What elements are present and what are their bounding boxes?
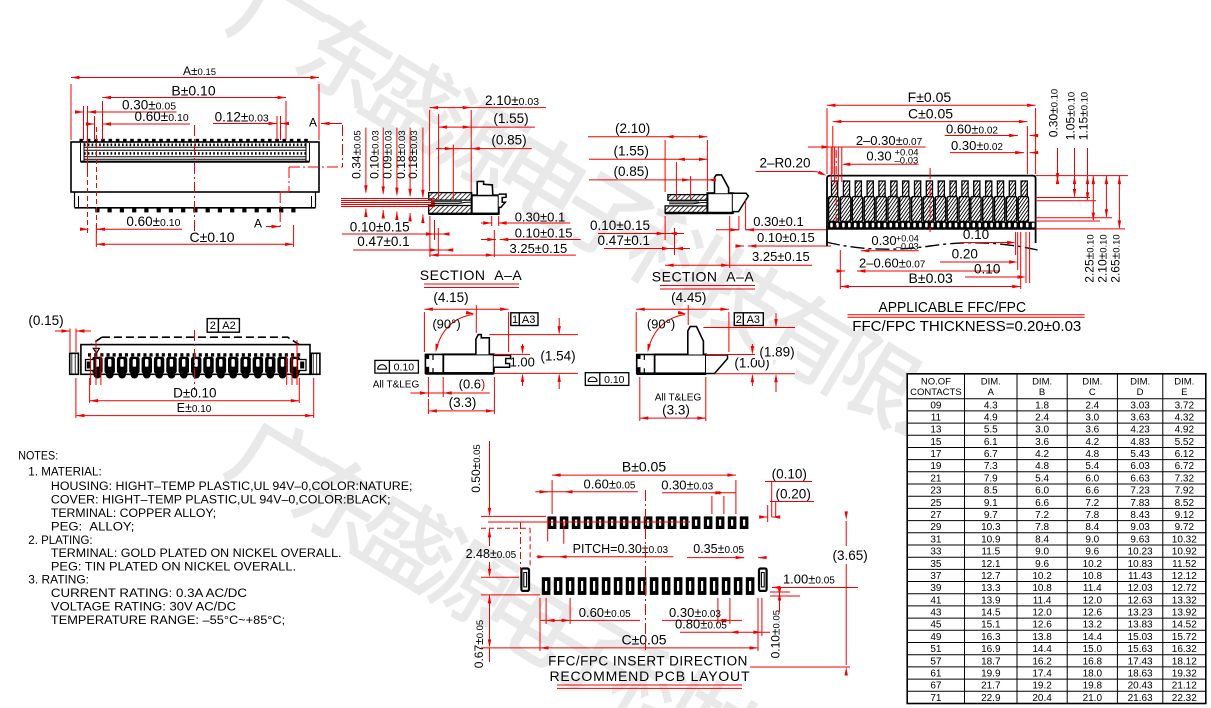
svg-text:0.12±0.03: 0.12±0.03 <box>215 109 269 124</box>
svg-text:5.4: 5.4 <box>1035 473 1049 484</box>
svg-text:0.10: 0.10 <box>394 362 415 374</box>
svg-text:6.12: 6.12 <box>1175 449 1195 460</box>
svg-text:41: 41 <box>930 595 942 606</box>
svg-text:10.92: 10.92 <box>1172 547 1197 558</box>
svg-text:C±0.05: C±0.05 <box>621 631 666 647</box>
svg-text:6.6: 6.6 <box>1035 498 1049 509</box>
svg-text:2.4: 2.4 <box>1035 413 1049 424</box>
svg-text:DIM.: DIM. <box>1130 377 1150 388</box>
svg-text:5.52: 5.52 <box>1175 437 1195 448</box>
svg-text:A: A <box>988 387 995 398</box>
svg-text:19.32: 19.32 <box>1172 669 1197 680</box>
svg-text:6.7: 6.7 <box>984 449 998 460</box>
svg-text:51: 51 <box>930 644 942 655</box>
svg-text:C±0.10: C±0.10 <box>189 229 234 245</box>
svg-text:1.8: 1.8 <box>1035 400 1049 411</box>
svg-text:10.32: 10.32 <box>1172 534 1197 545</box>
svg-text:19: 19 <box>930 461 942 472</box>
svg-text:8.4: 8.4 <box>1085 522 1099 533</box>
svg-text:4.9: 4.9 <box>984 413 998 424</box>
svg-text:9.6: 9.6 <box>1085 547 1099 558</box>
svg-text:2.10±0.10: 2.10±0.10 <box>1095 234 1109 282</box>
svg-text:0.10: 0.10 <box>974 262 1000 277</box>
svg-text:27: 27 <box>930 510 942 521</box>
svg-text:6.63: 6.63 <box>1130 473 1150 484</box>
svg-text:12.12: 12.12 <box>1172 571 1197 582</box>
svg-text:18.7: 18.7 <box>981 656 1001 667</box>
svg-text:DIM.: DIM. <box>1174 377 1194 388</box>
svg-text:(90°): (90°) <box>647 317 675 332</box>
svg-text:6.03: 6.03 <box>1130 461 1150 472</box>
svg-text:13.83: 13.83 <box>1128 620 1153 631</box>
svg-text:HOUSING: HIGHT–TEMP PLASTIC,UL: HOUSING: HIGHT–TEMP PLASTIC,UL 94V–0,COL… <box>51 479 413 493</box>
svg-text:0.10: 0.10 <box>963 227 989 242</box>
svg-text:D: D <box>1137 387 1144 398</box>
svg-text:21.63: 21.63 <box>1128 693 1153 704</box>
svg-text:RECOMMEND PCB LAYOUT: RECOMMEND PCB LAYOUT <box>549 668 750 684</box>
svg-text:2.25±0.10: 2.25±0.10 <box>1082 234 1096 282</box>
svg-text:DIM.: DIM. <box>1082 377 1102 388</box>
svg-text:C±0.05: C±0.05 <box>908 105 953 121</box>
svg-text:8.43: 8.43 <box>1130 510 1150 521</box>
svg-text:(0.15): (0.15) <box>28 313 63 328</box>
svg-text:A2: A2 <box>222 320 235 332</box>
svg-text:VOLTAGE RATING: 30V AC/DC: VOLTAGE RATING: 30V AC/DC <box>51 599 236 613</box>
svg-text:2: 2 <box>210 320 216 332</box>
svg-text:B±0.03: B±0.03 <box>909 270 953 286</box>
svg-text:2. PLATING:: 2. PLATING: <box>28 533 92 547</box>
svg-text:(1.55): (1.55) <box>493 111 528 126</box>
svg-text:A: A <box>254 217 262 231</box>
svg-text:7.83: 7.83 <box>1130 498 1150 509</box>
svg-text:2–R0.20: 2–R0.20 <box>759 156 810 171</box>
svg-text:31: 31 <box>930 534 942 545</box>
svg-text:CURRENT RATING: 0.3A AC/DC: CURRENT RATING: 0.3A AC/DC <box>51 586 247 600</box>
svg-text:0.30±0.1: 0.30±0.1 <box>753 214 804 229</box>
svg-text:SECTION A–A: SECTION A–A <box>420 267 523 283</box>
svg-text:18.12: 18.12 <box>1172 656 1197 667</box>
svg-text:9.1: 9.1 <box>984 498 998 509</box>
svg-text:10.9: 10.9 <box>981 534 1001 545</box>
svg-text:C: C <box>1089 387 1096 398</box>
svg-text:(0.85): (0.85) <box>614 164 649 179</box>
svg-text:3.63: 3.63 <box>1130 413 1150 424</box>
svg-text:CONTACTS: CONTACTS <box>910 387 962 398</box>
svg-text:(0.85): (0.85) <box>491 133 526 148</box>
svg-text:12.03: 12.03 <box>1128 583 1153 594</box>
svg-text:0.35±0.05: 0.35±0.05 <box>693 542 744 556</box>
svg-text:20.43: 20.43 <box>1128 681 1153 692</box>
svg-text:FFC/FPC THICKNESS=0.20±0.03: FFC/FPC THICKNESS=0.20±0.03 <box>852 318 1081 335</box>
svg-text:7.92: 7.92 <box>1175 486 1195 497</box>
svg-text:3.03: 3.03 <box>1130 400 1150 411</box>
svg-text:DIM.: DIM. <box>1032 377 1052 388</box>
svg-text:21.12: 21.12 <box>1172 681 1197 692</box>
svg-text:B±0.05: B±0.05 <box>622 459 666 475</box>
svg-text:9.6: 9.6 <box>1035 559 1049 570</box>
svg-text:12.63: 12.63 <box>1128 595 1153 606</box>
svg-text:0.10±0.15: 0.10±0.15 <box>590 218 650 233</box>
svg-text:9.12: 9.12 <box>1175 510 1195 521</box>
svg-text:15: 15 <box>930 437 942 448</box>
svg-text:22.9: 22.9 <box>981 693 1001 704</box>
svg-text:35: 35 <box>930 559 942 570</box>
svg-text:3.0: 3.0 <box>1035 425 1049 436</box>
svg-text:4.2: 4.2 <box>1085 437 1099 448</box>
svg-text:F±0.05: F±0.05 <box>908 89 952 105</box>
svg-text:1: 1 <box>512 314 518 326</box>
svg-text:17: 17 <box>930 449 942 460</box>
svg-text:(4.15): (4.15) <box>433 290 468 305</box>
svg-text:1.05±0.10: 1.05±0.10 <box>1064 92 1078 140</box>
svg-text:37: 37 <box>930 571 942 582</box>
svg-text:18.0: 18.0 <box>1083 669 1103 680</box>
svg-text:7.8: 7.8 <box>1085 510 1099 521</box>
svg-text:All T&LEG: All T&LEG <box>373 379 420 390</box>
svg-text:DIM.: DIM. <box>981 377 1001 388</box>
svg-text:18.63: 18.63 <box>1128 669 1153 680</box>
svg-text:16.3: 16.3 <box>981 632 1001 643</box>
svg-text:12.0: 12.0 <box>1032 608 1052 619</box>
svg-text:9.72: 9.72 <box>1175 522 1195 533</box>
svg-text:0.34±0.05: 0.34±0.05 <box>349 130 363 178</box>
svg-text:29: 29 <box>930 522 942 533</box>
svg-text:57: 57 <box>930 656 942 667</box>
svg-text:11.4: 11.4 <box>1083 583 1102 594</box>
svg-text:4.32: 4.32 <box>1175 413 1195 424</box>
svg-text:15.0: 15.0 <box>1083 644 1103 655</box>
svg-text:25: 25 <box>930 498 942 509</box>
svg-text:19.2: 19.2 <box>1032 681 1052 692</box>
svg-text:A3: A3 <box>522 314 535 326</box>
svg-text:2.4: 2.4 <box>1085 400 1099 411</box>
svg-text:20.4: 20.4 <box>1032 693 1052 704</box>
svg-text:10.23: 10.23 <box>1128 547 1153 558</box>
svg-text:09: 09 <box>930 400 942 411</box>
svg-text:9.63: 9.63 <box>1130 534 1150 545</box>
svg-text:–0.03: –0.03 <box>896 242 919 252</box>
svg-text:10.83: 10.83 <box>1128 559 1153 570</box>
svg-text:23: 23 <box>930 486 942 497</box>
svg-text:0.10±0.05: 0.10±0.05 <box>769 610 783 658</box>
svg-text:6.0: 6.0 <box>1035 486 1049 497</box>
svg-text:3. RATING:: 3. RATING: <box>28 573 89 587</box>
svg-text:10.3: 10.3 <box>981 522 1001 533</box>
svg-text:3.72: 3.72 <box>1175 400 1195 411</box>
svg-text:12.7: 12.7 <box>981 571 1001 582</box>
svg-text:9.7: 9.7 <box>984 510 998 521</box>
svg-text:13.3: 13.3 <box>981 583 1001 594</box>
svg-text:71: 71 <box>930 693 942 704</box>
svg-text:10.2: 10.2 <box>1032 571 1052 582</box>
svg-text:E: E <box>1181 387 1187 398</box>
svg-text:3.25±0.15: 3.25±0.15 <box>510 241 568 256</box>
svg-text:0.30±0.1: 0.30±0.1 <box>515 209 566 224</box>
svg-text:0.47±0.1: 0.47±0.1 <box>598 233 650 248</box>
svg-text:4.23: 4.23 <box>1130 425 1150 436</box>
svg-text:0.30: 0.30 <box>871 233 896 248</box>
svg-text:(1.54): (1.54) <box>540 349 575 364</box>
svg-text:4.8: 4.8 <box>1035 461 1049 472</box>
svg-text:2.48±0.05: 2.48±0.05 <box>466 547 517 561</box>
svg-text:12.6: 12.6 <box>1083 608 1103 619</box>
svg-text:21.7: 21.7 <box>981 681 1001 692</box>
svg-text:7.23: 7.23 <box>1130 486 1150 497</box>
svg-text:7.8: 7.8 <box>1035 522 1049 533</box>
svg-text:D±0.10: D±0.10 <box>173 385 216 400</box>
svg-text:11: 11 <box>931 413 942 424</box>
svg-text:0.30±0.10: 0.30±0.10 <box>1047 89 1061 137</box>
svg-text:6.1: 6.1 <box>984 437 998 448</box>
svg-text:APPLICABLE FFC/FPC: APPLICABLE FFC/FPC <box>879 299 1027 316</box>
svg-text:22.32: 22.32 <box>1172 693 1197 704</box>
svg-text:10.2: 10.2 <box>1083 559 1103 570</box>
svg-text:9.03: 9.03 <box>1130 522 1150 533</box>
svg-text:TERMINAL: COPPER ALLOY;: TERMINAL: COPPER ALLOY; <box>51 506 216 520</box>
svg-text:7.2: 7.2 <box>1085 498 1099 509</box>
svg-text:7.32: 7.32 <box>1175 473 1195 484</box>
svg-text:15.1: 15.1 <box>981 620 1001 631</box>
svg-text:11.52: 11.52 <box>1172 559 1197 570</box>
svg-text:12.1: 12.1 <box>981 559 1001 570</box>
svg-text:2.10±0.03: 2.10±0.03 <box>485 93 539 108</box>
svg-text:19.8: 19.8 <box>1083 681 1103 692</box>
svg-text:(3.3): (3.3) <box>662 402 690 417</box>
svg-text:NO.OF: NO.OF <box>921 377 951 388</box>
svg-text:3.6: 3.6 <box>1035 437 1049 448</box>
svg-text:A3: A3 <box>747 314 760 326</box>
svg-text:4.2: 4.2 <box>1035 449 1049 460</box>
svg-text:15.03: 15.03 <box>1128 632 1153 643</box>
svg-text:39: 39 <box>930 583 942 594</box>
svg-text:5.5: 5.5 <box>984 425 998 436</box>
svg-text:6.0: 6.0 <box>1085 473 1099 484</box>
svg-text:14.5: 14.5 <box>981 608 1001 619</box>
svg-text:NOTES:: NOTES: <box>18 449 58 463</box>
svg-text:(0.10): (0.10) <box>772 467 807 482</box>
svg-text:A±0.15: A±0.15 <box>183 64 216 78</box>
svg-text:0.10±0.15: 0.10±0.15 <box>515 226 573 241</box>
svg-text:(90°): (90°) <box>432 317 460 332</box>
svg-text:3.6: 3.6 <box>1085 425 1099 436</box>
svg-text:16.8: 16.8 <box>1083 656 1103 667</box>
svg-text:1.15±0.10: 1.15±0.10 <box>1077 92 1091 140</box>
svg-text:0.60±0.10: 0.60±0.10 <box>126 214 180 229</box>
svg-text:E±0.10: E±0.10 <box>177 401 212 415</box>
svg-text:43: 43 <box>930 608 942 619</box>
svg-text:61: 61 <box>930 669 942 680</box>
svg-text:FFC/FPC INSERT DIRECTION: FFC/FPC INSERT DIRECTION <box>548 654 748 669</box>
svg-text:6.72: 6.72 <box>1175 461 1195 472</box>
svg-text:PEG: ALLOY;: PEG: ALLOY; <box>51 519 134 533</box>
svg-text:8.5: 8.5 <box>984 486 998 497</box>
svg-text:9.0: 9.0 <box>1035 547 1049 558</box>
svg-text:13.2: 13.2 <box>1083 620 1103 631</box>
svg-text:SECTION A–A: SECTION A–A <box>652 269 755 285</box>
svg-text:45: 45 <box>930 620 942 631</box>
svg-text:11.43: 11.43 <box>1128 571 1153 582</box>
svg-text:19.9: 19.9 <box>981 669 1001 680</box>
svg-text:PITCH=0.30±0.03: PITCH=0.30±0.03 <box>573 542 669 556</box>
svg-text:12.6: 12.6 <box>1032 620 1052 631</box>
svg-text:33: 33 <box>930 547 942 558</box>
svg-text:B: B <box>1039 387 1045 398</box>
svg-text:3.25±0.15: 3.25±0.15 <box>752 249 810 264</box>
svg-text:12.0: 12.0 <box>1083 595 1103 606</box>
svg-text:0.47±0.1: 0.47±0.1 <box>357 234 409 249</box>
svg-text:14.52: 14.52 <box>1172 620 1197 631</box>
svg-text:(1.55): (1.55) <box>614 144 649 159</box>
svg-text:11.5: 11.5 <box>981 547 1000 558</box>
svg-text:5.4: 5.4 <box>1085 461 1099 472</box>
svg-text:0.20: 0.20 <box>952 247 978 262</box>
svg-text:0.10±0.15: 0.10±0.15 <box>350 220 410 235</box>
svg-text:21: 21 <box>930 473 942 484</box>
svg-text:7.9: 7.9 <box>984 473 998 484</box>
svg-text:13.92: 13.92 <box>1172 608 1197 619</box>
svg-text:0.50±0.05: 0.50±0.05 <box>469 444 483 492</box>
svg-text:13.9: 13.9 <box>981 595 1001 606</box>
svg-text:3.0: 3.0 <box>1085 413 1099 424</box>
svg-text:4.92: 4.92 <box>1175 425 1195 436</box>
svg-text:6.6: 6.6 <box>1085 486 1099 497</box>
svg-text:2.65±0.10: 2.65±0.10 <box>1108 234 1122 282</box>
svg-text:13: 13 <box>930 425 942 436</box>
svg-text:10.8: 10.8 <box>1083 571 1103 582</box>
svg-text:0.10±0.03: 0.10±0.03 <box>367 130 381 178</box>
svg-text:15.63: 15.63 <box>1128 644 1153 655</box>
svg-text:0.10: 0.10 <box>604 374 625 386</box>
svg-text:(3.65): (3.65) <box>832 548 867 563</box>
svg-text:9.0: 9.0 <box>1085 534 1099 545</box>
svg-text:11.4: 11.4 <box>1033 595 1052 606</box>
svg-text:13.8: 13.8 <box>1032 632 1052 643</box>
svg-text:14.4: 14.4 <box>1032 644 1052 655</box>
svg-text:12.72: 12.72 <box>1172 583 1197 594</box>
svg-text:49: 49 <box>930 632 942 643</box>
svg-text:(0.20): (0.20) <box>776 486 811 501</box>
svg-text:1.00: 1.00 <box>510 355 535 370</box>
svg-text:13.32: 13.32 <box>1172 595 1197 606</box>
svg-text:15.72: 15.72 <box>1172 632 1197 643</box>
svg-text:PEG: TIN PLATED ON NICKEL OVER: PEG: TIN PLATED ON NICKEL OVERALL. <box>51 559 296 573</box>
svg-text:16.2: 16.2 <box>1032 656 1052 667</box>
svg-text:(0.6): (0.6) <box>459 377 486 392</box>
svg-text:16.32: 16.32 <box>1172 644 1197 655</box>
svg-text:7.3: 7.3 <box>984 461 998 472</box>
svg-text:8.52: 8.52 <box>1175 498 1195 509</box>
svg-text:4.83: 4.83 <box>1130 437 1150 448</box>
svg-text:(3.3): (3.3) <box>449 395 477 410</box>
svg-text:(2.10): (2.10) <box>615 121 650 136</box>
svg-text:67: 67 <box>930 681 942 692</box>
svg-text:(4.45): (4.45) <box>671 290 706 305</box>
svg-text:8.4: 8.4 <box>1035 534 1049 545</box>
svg-text:7.2: 7.2 <box>1035 510 1049 521</box>
svg-text:17.4: 17.4 <box>1032 669 1052 680</box>
svg-text:13.23: 13.23 <box>1128 608 1153 619</box>
svg-text:(1.89): (1.89) <box>759 345 794 360</box>
svg-text:10.8: 10.8 <box>1032 583 1052 594</box>
svg-text:TERMINAL: GOLD PLATED ON NICKE: TERMINAL: GOLD PLATED ON NICKEL OVERALL. <box>51 546 342 560</box>
svg-text:4.3: 4.3 <box>984 400 998 411</box>
svg-text:–0.03: –0.03 <box>895 156 919 167</box>
svg-text:5.43: 5.43 <box>1130 449 1150 460</box>
svg-text:4.8: 4.8 <box>1085 449 1099 460</box>
svg-text:0.18±0.03: 0.18±0.03 <box>406 130 420 178</box>
svg-text:0.67±0.05: 0.67±0.05 <box>472 620 486 668</box>
svg-text:16.9: 16.9 <box>981 644 1001 655</box>
svg-text:0.60±0.10: 0.60±0.10 <box>135 109 189 124</box>
svg-text:1. MATERIAL:: 1. MATERIAL: <box>28 465 101 479</box>
svg-text:A: A <box>309 116 317 130</box>
svg-text:0.10±0.15: 0.10±0.15 <box>757 230 815 245</box>
svg-text:B±0.10: B±0.10 <box>171 83 215 99</box>
svg-text:17.43: 17.43 <box>1128 656 1153 667</box>
svg-text:21.0: 21.0 <box>1083 693 1103 704</box>
svg-text:0.30: 0.30 <box>866 149 891 164</box>
svg-text:14.4: 14.4 <box>1083 632 1103 643</box>
svg-text:COVER: HIGHT–TEMP PLASTIC,UL 9: COVER: HIGHT–TEMP PLASTIC,UL 94V–0,COLOR… <box>51 492 391 506</box>
svg-text:2: 2 <box>736 314 742 326</box>
svg-text:TEMPERATURE RANGE: –55°C~+85°C: TEMPERATURE RANGE: –55°C~+85°C; <box>51 613 285 627</box>
